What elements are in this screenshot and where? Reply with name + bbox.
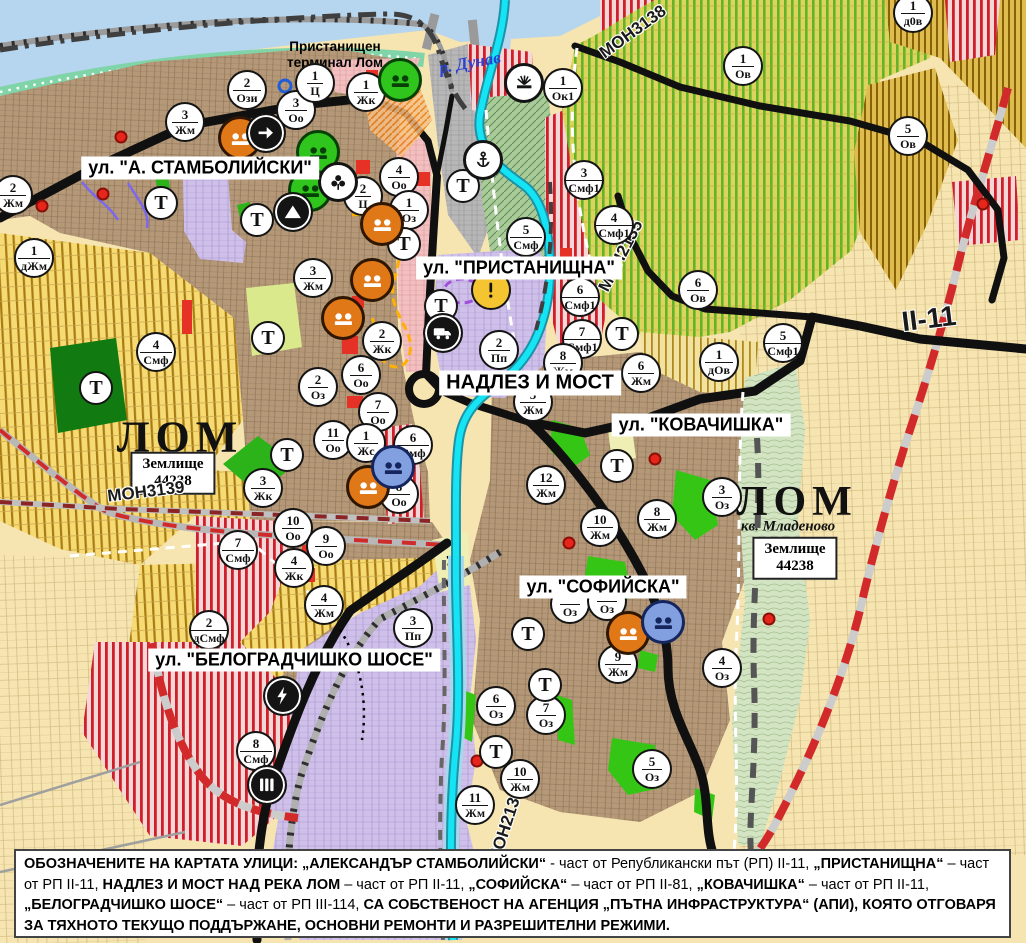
zone-marker-code: Смф1 [764, 343, 801, 357]
zone-marker-code: Смф [222, 550, 253, 564]
zone-marker: 6Ов [678, 270, 718, 310]
zone-marker-number: 10 [594, 513, 607, 527]
street-label-4: ул. "СОФИЙСКА" [519, 576, 686, 599]
zemlishte-box-east: Землище 44238 [752, 537, 837, 580]
legend-note-segment: „КОВАЧИШКА“ [697, 877, 805, 893]
road-number-label-4: II-11 [900, 300, 958, 338]
zone-marker-number: 6 [577, 283, 584, 297]
legend-note-segment: „ПРИСТАНИЩНА“ [813, 856, 943, 872]
zone-marker-code: Жм [644, 519, 670, 533]
legend-note-segment: ОБОЗНАЧЕНИТЕ НА КАРТАТА УЛИЦИ: „АЛЕКСАНД… [24, 856, 546, 872]
zone-marker-number: 7 [543, 701, 550, 715]
zone-marker: 6Жм [621, 353, 661, 393]
zone-marker-number: 5 [523, 223, 530, 237]
zone-marker-number: 2 [206, 616, 213, 630]
red-dot-marker [563, 537, 576, 550]
zone-marker-code: Ози [233, 90, 260, 104]
zone-marker-code: д0в [901, 13, 926, 27]
transport-marker: Т [79, 371, 113, 405]
zone-marker-code: Жм [311, 605, 337, 619]
zone-marker: 6Оо [341, 355, 381, 395]
red-dot-marker [763, 613, 776, 626]
red-dot-marker [977, 198, 990, 211]
zone-marker: 4Оз [702, 648, 742, 688]
zone-marker: 1дЖм [14, 238, 54, 278]
zone-marker: 10Жм [580, 507, 620, 547]
zone-marker-code: Жм [300, 278, 326, 292]
zone-marker-code: Оо [322, 440, 343, 454]
zone-marker-code: Смф [510, 237, 541, 251]
transport-marker: Т [251, 321, 285, 355]
transport-marker: Т [511, 617, 545, 651]
zone-marker-number: 10 [514, 765, 527, 779]
zone-marker-code: Жм [462, 805, 488, 819]
zone-marker-code: Жк [251, 488, 276, 502]
arrow-icon [246, 113, 286, 153]
zone-marker-number: 1 [363, 429, 370, 443]
zone-marker-code: Ок1 [549, 88, 577, 102]
zone-marker-code: Оо [315, 546, 336, 560]
zone-marker: 8Жм [637, 499, 677, 539]
zone-marker-number: 11 [469, 791, 481, 805]
zone-marker-number: 2 [244, 76, 251, 90]
zone-marker: 1Ц [295, 63, 335, 103]
zone-marker-code: Жм [587, 527, 613, 541]
zone-marker-code: Оз [486, 706, 506, 720]
zone-marker: 3Жм [165, 102, 205, 142]
zone-marker: 4Смф1 [594, 205, 634, 245]
zone-marker-code: Оо [388, 177, 409, 191]
zone-marker: 5Смф1 [763, 323, 803, 363]
zone-marker-number: 5 [649, 755, 656, 769]
monument-icon [350, 258, 394, 302]
zone-marker-number: 6 [410, 431, 417, 445]
zone-marker-number: 12 [540, 471, 553, 485]
legend-note-segment: – част от РП II-11, [805, 877, 929, 893]
transport-marker: Т [600, 449, 634, 483]
zone-marker-code: Жм [533, 485, 559, 499]
zone-marker: 3Жм [293, 258, 333, 298]
street-label-5: ул. "БЕЛОГРАДЧИШКО ШОСЕ" [148, 649, 440, 672]
zone-marker: 2Пп [479, 330, 519, 370]
zone-marker: 11Жм [455, 785, 495, 825]
anchor-icon [463, 140, 503, 180]
zone-marker-code: Ов [732, 66, 754, 80]
red-dot-marker [97, 188, 110, 201]
zone-marker-number: 10 [287, 514, 300, 528]
zone-marker-code: Оз [642, 769, 662, 783]
zone-marker-number: 4 [396, 163, 403, 177]
zone-marker-code: Смф1 [565, 180, 602, 194]
zone-marker-code: Оо [350, 375, 371, 389]
zone-marker-number: 8 [253, 737, 260, 751]
red-dot-marker [115, 131, 128, 144]
zone-marker: 5Смф [506, 217, 546, 257]
zone-smf-ne [945, 0, 1000, 62]
kvartal-label: кв. Младеново [741, 519, 835, 536]
zone-marker-number: 3 [310, 264, 317, 278]
railway-icon [247, 765, 287, 805]
zone-marker-number: 2 [315, 373, 322, 387]
zone-marker-number: 6 [358, 361, 365, 375]
truck-icon [423, 313, 463, 353]
zone-marker-number: 1 [363, 78, 370, 92]
zone-marker: 4Жк [274, 548, 314, 588]
zone-marker: 3Пп [393, 608, 433, 648]
zone-marker-number: 1 [312, 69, 319, 83]
zone-marker-number: 7 [235, 536, 242, 550]
transport-marker: Т [270, 438, 304, 472]
zone-marker-code: дЖм [18, 258, 50, 272]
zemlishte-line1: Землище [142, 456, 203, 473]
zone-marker-number: 2 [379, 327, 386, 341]
zone-marker-code: дОв [705, 362, 733, 376]
zone-marker: 3Оз [702, 477, 742, 517]
zone-marker-number: 1 [740, 52, 747, 66]
zone-marker: 6Оз [476, 686, 516, 726]
street-label-2: НАДЛЕЗ И МОСТ [439, 371, 621, 396]
legend-note-segment: – част от РП II-81, [567, 877, 696, 893]
legend-note-segment: - част от Републикански път (РП) II-11, [546, 856, 813, 872]
zone-marker: 1Ок1 [543, 68, 583, 108]
zone-marker-code: Жм [507, 779, 533, 793]
zone-marker-number: 4 [611, 211, 618, 225]
zone-marker-code: Жк [282, 568, 307, 582]
zone-marker-number: 1 [560, 74, 567, 88]
zone-marker-code: Оз [308, 387, 328, 401]
zone-marker: 12Жм [526, 465, 566, 505]
zone-marker-code: Оз [597, 601, 617, 615]
zone-marker-code: Оо [388, 494, 409, 508]
zone-marker: 2Жк [362, 321, 402, 361]
zone-marker: 4Жм [304, 585, 344, 625]
zone-marker-number: 8 [560, 349, 567, 363]
zone-marker-code: Жм [172, 122, 198, 136]
zone-marker: 2Оз [298, 367, 338, 407]
red-dot-marker [649, 453, 662, 466]
zone-marker-code: Смф1 [561, 297, 598, 311]
zone-marker: 3Смф1 [564, 160, 604, 200]
zone-marker-number: 9 [323, 532, 330, 546]
zone-marker-number: 6 [638, 359, 645, 373]
zone-marker-number: 5 [905, 122, 912, 136]
transport-marker: Т [144, 186, 178, 220]
zone-marker: 5Оз [632, 749, 672, 789]
zone-marker-number: 3 [182, 108, 189, 122]
monument-icon [360, 202, 404, 246]
legend-note-segment: – част от РП III-114, [223, 897, 363, 913]
zone-marker-code: Жм [0, 195, 26, 209]
zone-marker-number: 2 [10, 181, 17, 195]
street-label-0: ул. "А. СТАМБОЛИЙСКИ" [81, 157, 319, 180]
zone-marker-number: 3 [260, 474, 267, 488]
zone-marker-number: 7 [579, 325, 586, 339]
zone-marker-number: 1 [716, 348, 723, 362]
zone-marker-code: Жм [520, 402, 546, 416]
zone-marker-number: 6 [493, 692, 500, 706]
zone-marker-number: 5 [780, 329, 787, 343]
zoning-map[interactable]: р. Дунав Пристанищен терминал Лом ЛОМ ЛО… [0, 0, 1026, 943]
monument-icon [321, 296, 365, 340]
zone-marker-number: 3 [293, 96, 300, 110]
monument-icon [371, 445, 415, 489]
zone-marker-code: Ов [687, 290, 709, 304]
zone-marker-code: Жк [354, 92, 379, 106]
zone-marker: 5Ов [888, 116, 928, 156]
zone-marker-code: Жм [628, 373, 654, 387]
zone-marker-code: Смф1 [595, 225, 632, 239]
zone-marker: 1дОв [699, 342, 739, 382]
zone-marker-code: Оо [285, 110, 306, 124]
transport-marker: Т [605, 317, 639, 351]
zone-marker-number: 4 [719, 654, 726, 668]
terminal-label: Пристанищен терминал Лом [287, 39, 383, 71]
zone-marker-number: 1 [31, 244, 38, 258]
zone-marker-number: 4 [291, 554, 298, 568]
trefoil-icon [318, 162, 358, 202]
zone-marker-code: Смф [240, 751, 271, 765]
zone-marker-number: 6 [695, 276, 702, 290]
transport-marker: Т [528, 668, 562, 702]
zone-marker-code: Оз [536, 715, 556, 729]
zone-marker-number: 2 [360, 182, 367, 196]
triangle-icon [273, 192, 313, 232]
legend-note: ОБОЗНАЧЕНИТЕ НА КАРТАТА УЛИЦИ: „АЛЕКСАНД… [14, 849, 1011, 938]
zone-marker-code: Оз [712, 497, 732, 511]
zone-marker: 6Смф1 [560, 277, 600, 317]
sun-icon [504, 63, 544, 103]
street-label-3: ул. "КОВАЧИШКА" [612, 414, 791, 437]
zone-marker-code: Ов [897, 136, 919, 150]
zone-marker: 2дСмф [189, 610, 229, 650]
zone-marker-number: 7 [375, 398, 382, 412]
zone-marker-code: Жм [605, 664, 631, 678]
zone-marker-number: 1 [406, 196, 413, 210]
zone-marker-number: 3 [719, 483, 726, 497]
zone-marker-code: Жк [370, 341, 395, 355]
lightning-icon [263, 676, 303, 716]
zone-marker: 7Смф [218, 530, 258, 570]
zone-marker: 1Ов [723, 46, 763, 86]
zone-marker-number: 4 [153, 338, 160, 352]
zone-marker-code: Оо [282, 528, 303, 542]
transport-marker: Т [479, 735, 513, 769]
red-dot-marker [36, 200, 49, 213]
legend-note-segment: – част от РП II-11, [340, 877, 468, 893]
zemlishte-line2: 44238 [764, 558, 825, 575]
zone-marker-code: дСмф [190, 630, 227, 644]
zone-marker-number: 11 [327, 426, 339, 440]
zone-marker-code: Оз [560, 604, 580, 618]
zone-marker: 4Смф [136, 332, 176, 372]
zone-marker-number: 8 [654, 505, 661, 519]
zone-marker-code: Ц [307, 83, 322, 97]
zone-marker-number: 1 [910, 0, 917, 13]
street-label-1: ул. "ПРИСТАНИЩНА" [416, 257, 622, 280]
zone-marker-number: 3 [410, 614, 417, 628]
legend-note-segment: „БЕЛОГРАДЧИШКО ШОСЕ“ [24, 897, 223, 913]
zone-marker-code: Оз [712, 668, 732, 682]
monument-icon [378, 58, 422, 102]
zone-marker: 2Ози [227, 70, 267, 110]
zone-marker-number: 3 [581, 166, 588, 180]
legend-note-segment: „СОФИЙСКА“ [468, 877, 567, 893]
zone-marker: 3Жк [243, 468, 283, 508]
zone-marker-number: 4 [321, 591, 328, 605]
zemlishte-line1: Землище [764, 541, 825, 558]
zone-marker-code: Смф [140, 352, 171, 366]
monument-icon [641, 600, 685, 644]
zone-marker-number: 2 [496, 336, 503, 350]
transport-marker: Т [240, 203, 274, 237]
legend-note-segment: НАДЛЕЗ И МОСТ НАД РЕКА ЛОМ [103, 877, 341, 893]
zone-marker-code: Пп [488, 350, 510, 364]
zone-marker-code: Пп [402, 628, 424, 642]
